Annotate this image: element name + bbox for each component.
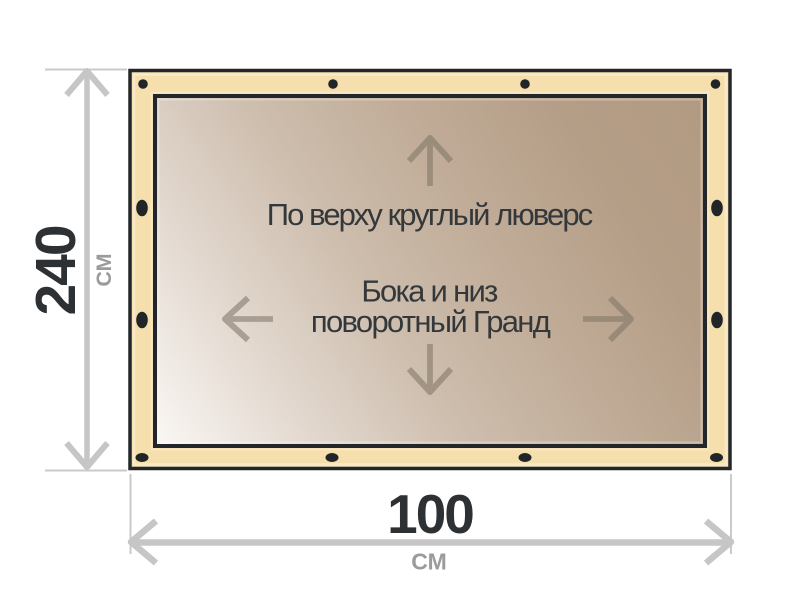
svg-text:По верху круглый люверс: По верху круглый люверс	[267, 197, 593, 232]
svg-text:СМ: СМ	[92, 253, 116, 286]
svg-text:240: 240	[24, 226, 88, 315]
svg-text:100: 100	[387, 483, 473, 545]
svg-text:СМ: СМ	[411, 549, 446, 575]
svg-text:поворотный Гранд: поворотный Гранд	[311, 304, 551, 339]
